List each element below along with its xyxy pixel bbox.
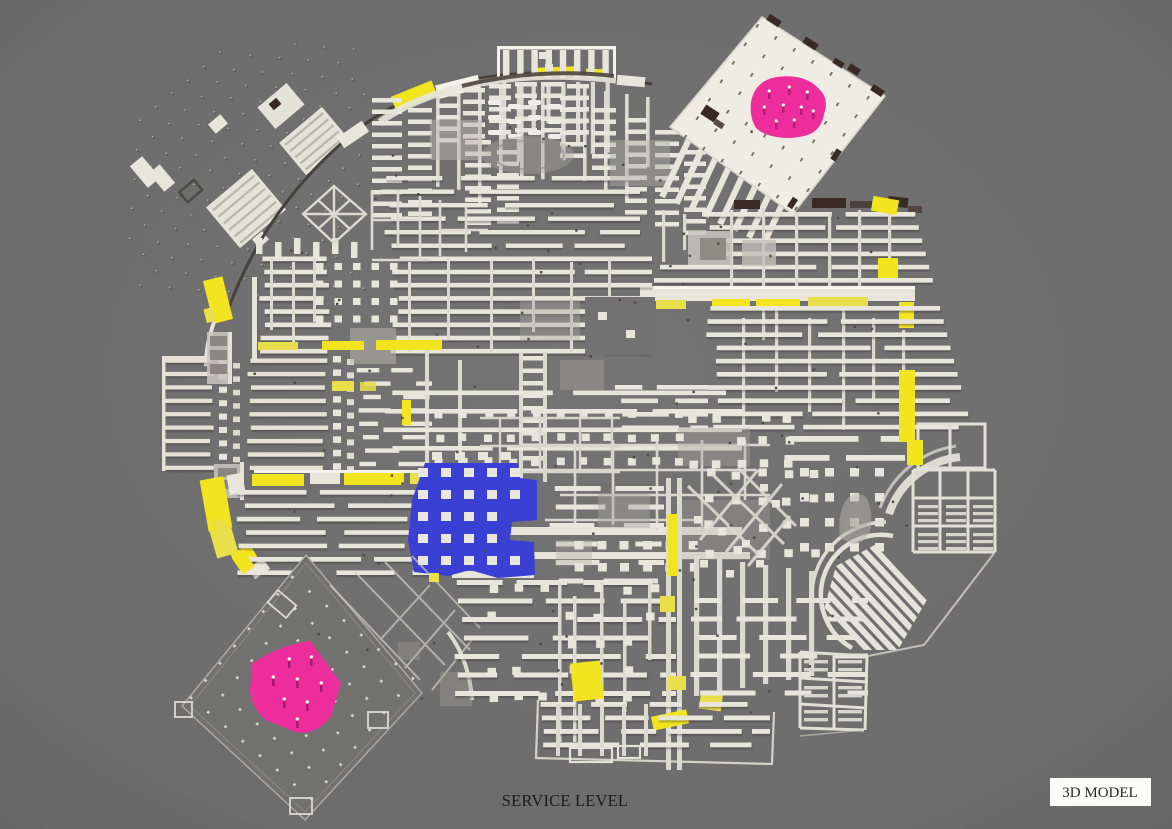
svg-text:3D MODEL: 3D MODEL [1062, 785, 1137, 801]
svg-text:SERVICE LEVEL: SERVICE LEVEL [502, 791, 628, 810]
